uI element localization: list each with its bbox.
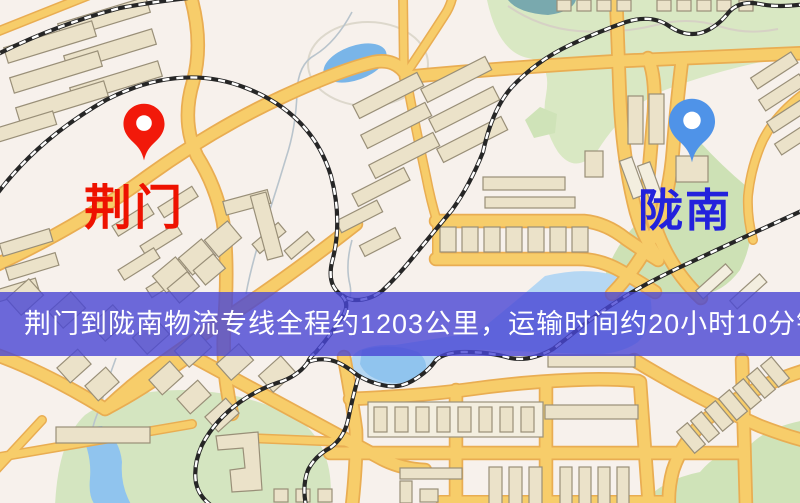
origin-city-label: 荆门 (84, 168, 184, 238)
route-info-banner: 荆门到陇南物流专线全程约1203公里，运输时间约20小时10分钟. (0, 292, 800, 356)
map-canvas (0, 0, 800, 503)
destination-city-label: 陇南 (638, 174, 732, 239)
origin-map-pin[interactable] (121, 101, 167, 169)
map-pin-icon (121, 101, 167, 164)
pin-shape (669, 99, 715, 163)
logistics-route-map: 荆门 陇南 荆门到陇南物流专线全程约1203公里，运输时间约20小时10分钟. (0, 0, 800, 503)
map-pin-icon (666, 96, 718, 166)
pin-shape (123, 104, 164, 161)
destination-map-pin[interactable] (666, 96, 718, 171)
